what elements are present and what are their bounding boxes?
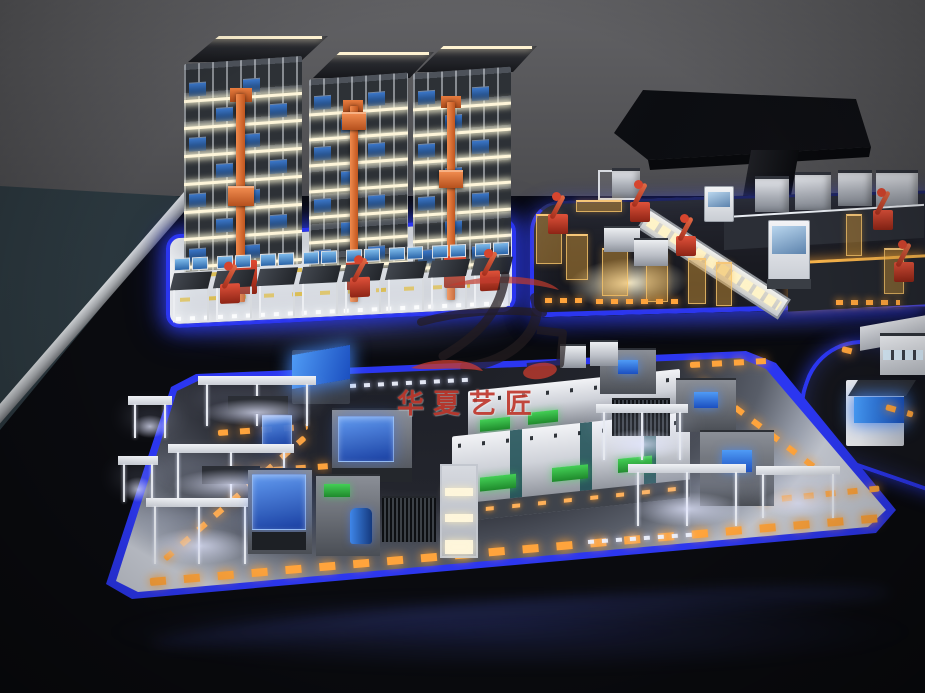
workstation	[301, 250, 339, 316]
rack-bin	[368, 91, 385, 106]
light-glow	[760, 489, 836, 518]
robot-arm	[220, 261, 240, 304]
workstation-screen	[260, 253, 276, 267]
workstation-screen	[407, 246, 423, 260]
robot-arm	[676, 214, 696, 256]
light-glow	[202, 399, 312, 427]
workstation-desk	[299, 265, 341, 284]
machine-module	[634, 238, 668, 266]
rack-bin	[472, 86, 489, 101]
rack-bin	[314, 198, 331, 213]
status-screen-green	[324, 484, 350, 497]
rack-bin	[472, 139, 489, 154]
rack-bin	[418, 196, 435, 211]
safety-fence	[846, 214, 862, 256]
workstation-legs	[302, 282, 338, 316]
machine-acrylic-window	[338, 416, 394, 462]
workstation	[258, 252, 296, 318]
watermark-logo	[385, 270, 615, 380]
workstation-screen	[174, 257, 190, 271]
rack-bin	[314, 146, 331, 161]
control-cabin	[768, 220, 810, 282]
light-glow	[600, 429, 684, 460]
equipment-cabinet	[795, 172, 831, 210]
rack-bin	[216, 163, 233, 178]
equipment-cabinet	[880, 333, 925, 375]
robot-arm	[873, 188, 893, 230]
rack-led-strip	[309, 184, 408, 194]
workstation-screen	[321, 250, 337, 264]
canopy-station	[146, 498, 254, 564]
workstation-screen	[192, 257, 208, 271]
status-screen-blue	[694, 392, 718, 408]
blue-cylinder-tank	[350, 508, 372, 544]
canopy-station	[198, 376, 316, 426]
rack-bin	[189, 137, 206, 152]
equipment-cabinet	[838, 170, 872, 206]
light-glow	[132, 415, 168, 438]
safety-fence	[716, 262, 732, 306]
workstation-screen	[303, 251, 319, 265]
watermark: 华夏艺匠	[385, 270, 615, 415]
workstation-legs	[259, 284, 295, 318]
light-glow	[632, 492, 742, 526]
safety-fence	[688, 258, 706, 304]
workstation-screen	[450, 244, 466, 258]
machine-enclosure	[248, 468, 312, 554]
amber-led-strip	[836, 300, 900, 305]
canopy-station	[118, 456, 158, 502]
watermark-text: 华夏艺匠	[397, 382, 607, 421]
stacker-crane-carriage	[342, 112, 366, 130]
rack-bin	[368, 142, 385, 157]
rack-bin	[314, 95, 331, 110]
machine-top	[848, 380, 916, 396]
rack-led-strip	[413, 128, 511, 138]
canopy-roof	[756, 466, 840, 475]
robot-arm	[350, 255, 370, 298]
rack-bin	[418, 143, 435, 158]
rack-led-strip	[309, 132, 408, 142]
cabin-window	[708, 192, 730, 207]
canopy-roof	[146, 498, 254, 507]
canopy-station	[128, 396, 172, 438]
status-screen-blue	[618, 360, 638, 374]
rack-roof-led	[429, 46, 532, 49]
heatsink-module	[382, 496, 436, 542]
rack-bin	[216, 218, 233, 233]
workstation-desk	[170, 271, 212, 290]
rack-bin	[243, 133, 260, 148]
lit-shelf	[445, 514, 473, 522]
workstation-screen	[278, 252, 294, 266]
rack-bin	[418, 90, 435, 105]
rack-bin	[472, 192, 489, 207]
robot-arm	[548, 192, 568, 234]
canopy-station	[756, 466, 840, 518]
stacker-crane-carriage	[439, 170, 463, 188]
safety-fence	[576, 200, 622, 212]
robot-arm	[894, 240, 914, 282]
lit-shelf	[445, 540, 473, 554]
rack-bin	[270, 214, 287, 229]
workstation	[172, 257, 210, 323]
rack-bin	[216, 107, 233, 122]
workstation-screen	[389, 247, 405, 261]
rack-roof-led	[202, 36, 322, 39]
machine-cabinet	[316, 474, 380, 556]
rack-led-strip	[309, 235, 408, 245]
shelf-tower	[440, 464, 478, 558]
canopy-station	[628, 464, 746, 526]
control-cabin	[704, 186, 734, 222]
rack-bin	[189, 193, 206, 208]
machine-acrylic-window	[252, 474, 306, 530]
showroom-photo: 华夏艺匠	[0, 0, 925, 693]
rack-bin	[270, 103, 287, 118]
cabin-window	[772, 226, 806, 254]
robot-arm	[630, 180, 650, 222]
equipment-cabinet	[755, 176, 789, 212]
rack-bin	[270, 159, 287, 174]
lit-shelf	[445, 488, 473, 496]
machine-base	[252, 532, 306, 550]
light-glow	[150, 528, 250, 564]
workstation-desk	[256, 267, 298, 286]
window-row	[883, 350, 923, 360]
workstation-legs	[173, 289, 209, 323]
rack-roof-led	[325, 52, 429, 55]
rack-bin	[368, 194, 385, 209]
cabin-base	[767, 279, 811, 289]
workstation-screen	[432, 245, 448, 259]
rack-bin	[189, 82, 206, 97]
machine-band	[580, 422, 592, 491]
stacker-crane-carriage	[228, 186, 254, 206]
